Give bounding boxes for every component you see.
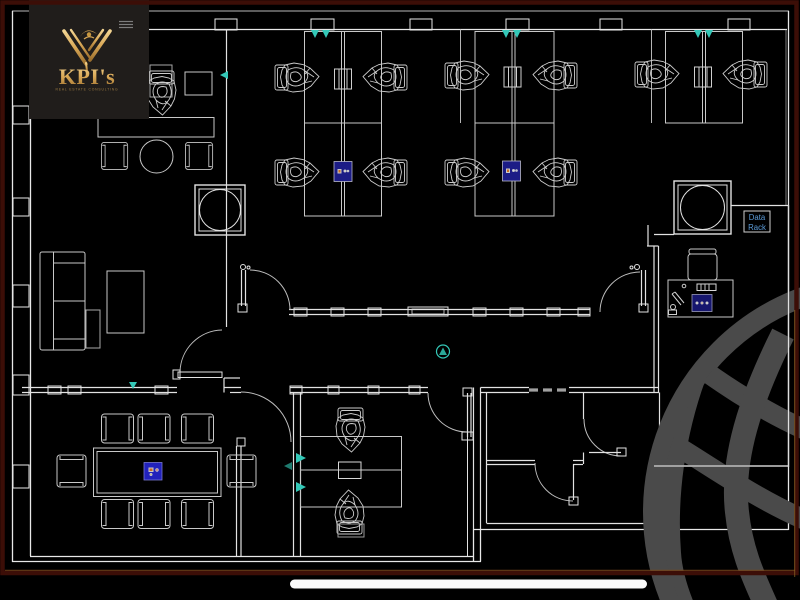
svg-text:Rack: Rack [748, 223, 766, 232]
svg-text:KPI's: KPI's [59, 64, 115, 89]
svg-text:REAL ESTATE CONSULTING: REAL ESTATE CONSULTING [56, 88, 119, 92]
svg-text:Data: Data [749, 213, 766, 222]
